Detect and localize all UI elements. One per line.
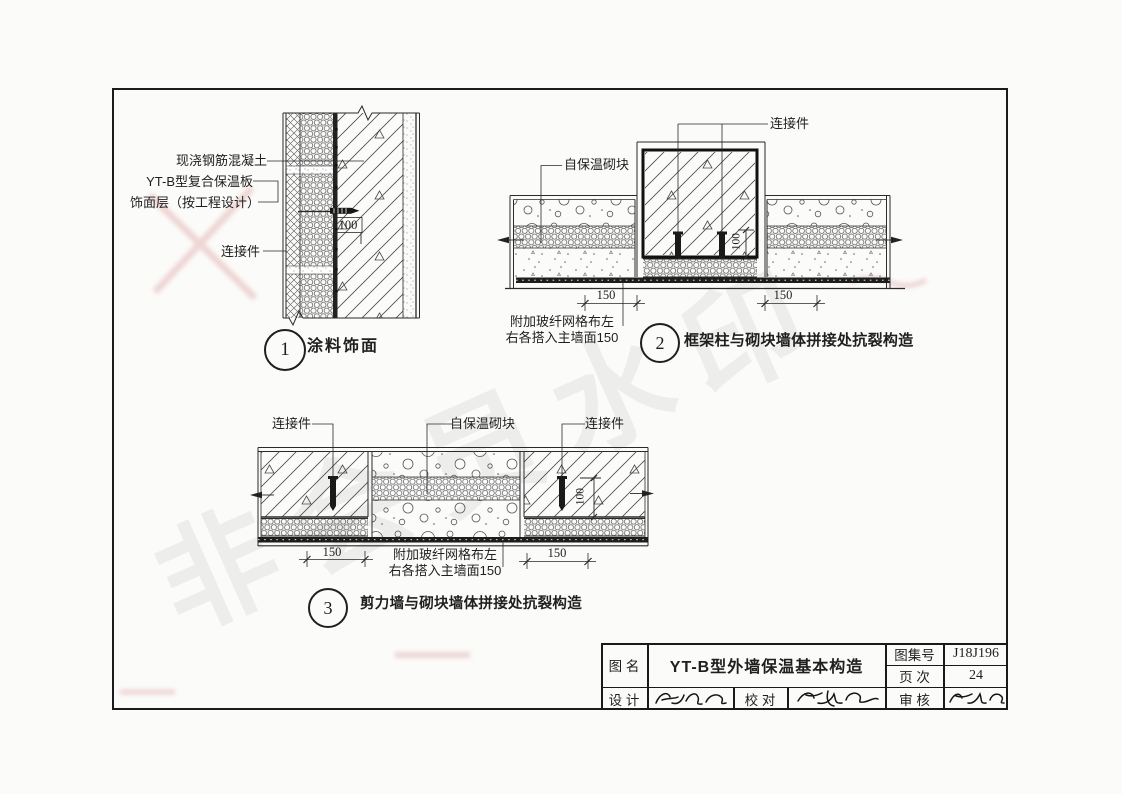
label-connector-2: 连接件: [770, 117, 809, 132]
mesh-note-2: 附加玻纤网格布左 右各搭入主墙面150: [502, 314, 622, 346]
atlas-number-value: J18J196: [944, 643, 1008, 665]
label-block-2: 自保温砌块: [564, 158, 629, 173]
review-signature: [944, 687, 1008, 710]
label-finish-layer: 饰面层（按工程设计）: [115, 196, 260, 211]
detail-3-number: 3: [308, 588, 348, 628]
page-number-label: 页 次: [886, 665, 943, 687]
label-connector-3-left: 连接件: [272, 417, 311, 432]
detail-1-title: 涂料饰面: [307, 338, 379, 356]
drawing-name-label: 图 名: [601, 643, 647, 687]
mesh-note-3: 附加玻纤网格布左 右各搭入主墙面150: [387, 547, 503, 579]
label-cast-concrete: 现浇钢筋混凝土: [140, 154, 267, 169]
label-block-3: 自保温砌块: [450, 417, 515, 432]
drawing-name-value: YT-B型外墙保温基本构造: [648, 643, 885, 687]
dim-embed-3: 100: [574, 482, 587, 512]
dim-150-left-3: 150: [306, 545, 358, 559]
design-signature: [648, 687, 733, 710]
dim-embed-1: 100: [334, 218, 362, 232]
page-number-value: 24: [944, 665, 1008, 687]
atlas-number-label: 图集号: [886, 643, 943, 665]
designer-label: 设 计: [601, 687, 647, 710]
dim-150-left-2: 150: [580, 288, 632, 302]
label-composite-panel: YT-B型复合保温板: [123, 175, 253, 190]
dim-150-right-3: 150: [531, 546, 583, 560]
drawing-sheet: 非会员水印: [0, 0, 1122, 794]
detail-2-number: 2: [640, 323, 680, 363]
label-connector-3-right: 连接件: [585, 417, 624, 432]
detail-1-number: 1: [264, 329, 306, 371]
dim-embed-2: 100: [730, 227, 743, 257]
detail-3-title: 剪力墙与砌块墙体拼接处抗裂构造: [360, 596, 582, 613]
label-connector-1: 连接件: [133, 245, 260, 260]
dim-150-right-2: 150: [757, 288, 809, 302]
detail-2-title: 框架柱与砌块墙体拼接处抗裂构造: [684, 332, 914, 349]
proofreader-label: 校 对: [733, 687, 787, 710]
reviewer-label: 审 核: [886, 687, 943, 710]
proofread-signature: [788, 687, 885, 710]
